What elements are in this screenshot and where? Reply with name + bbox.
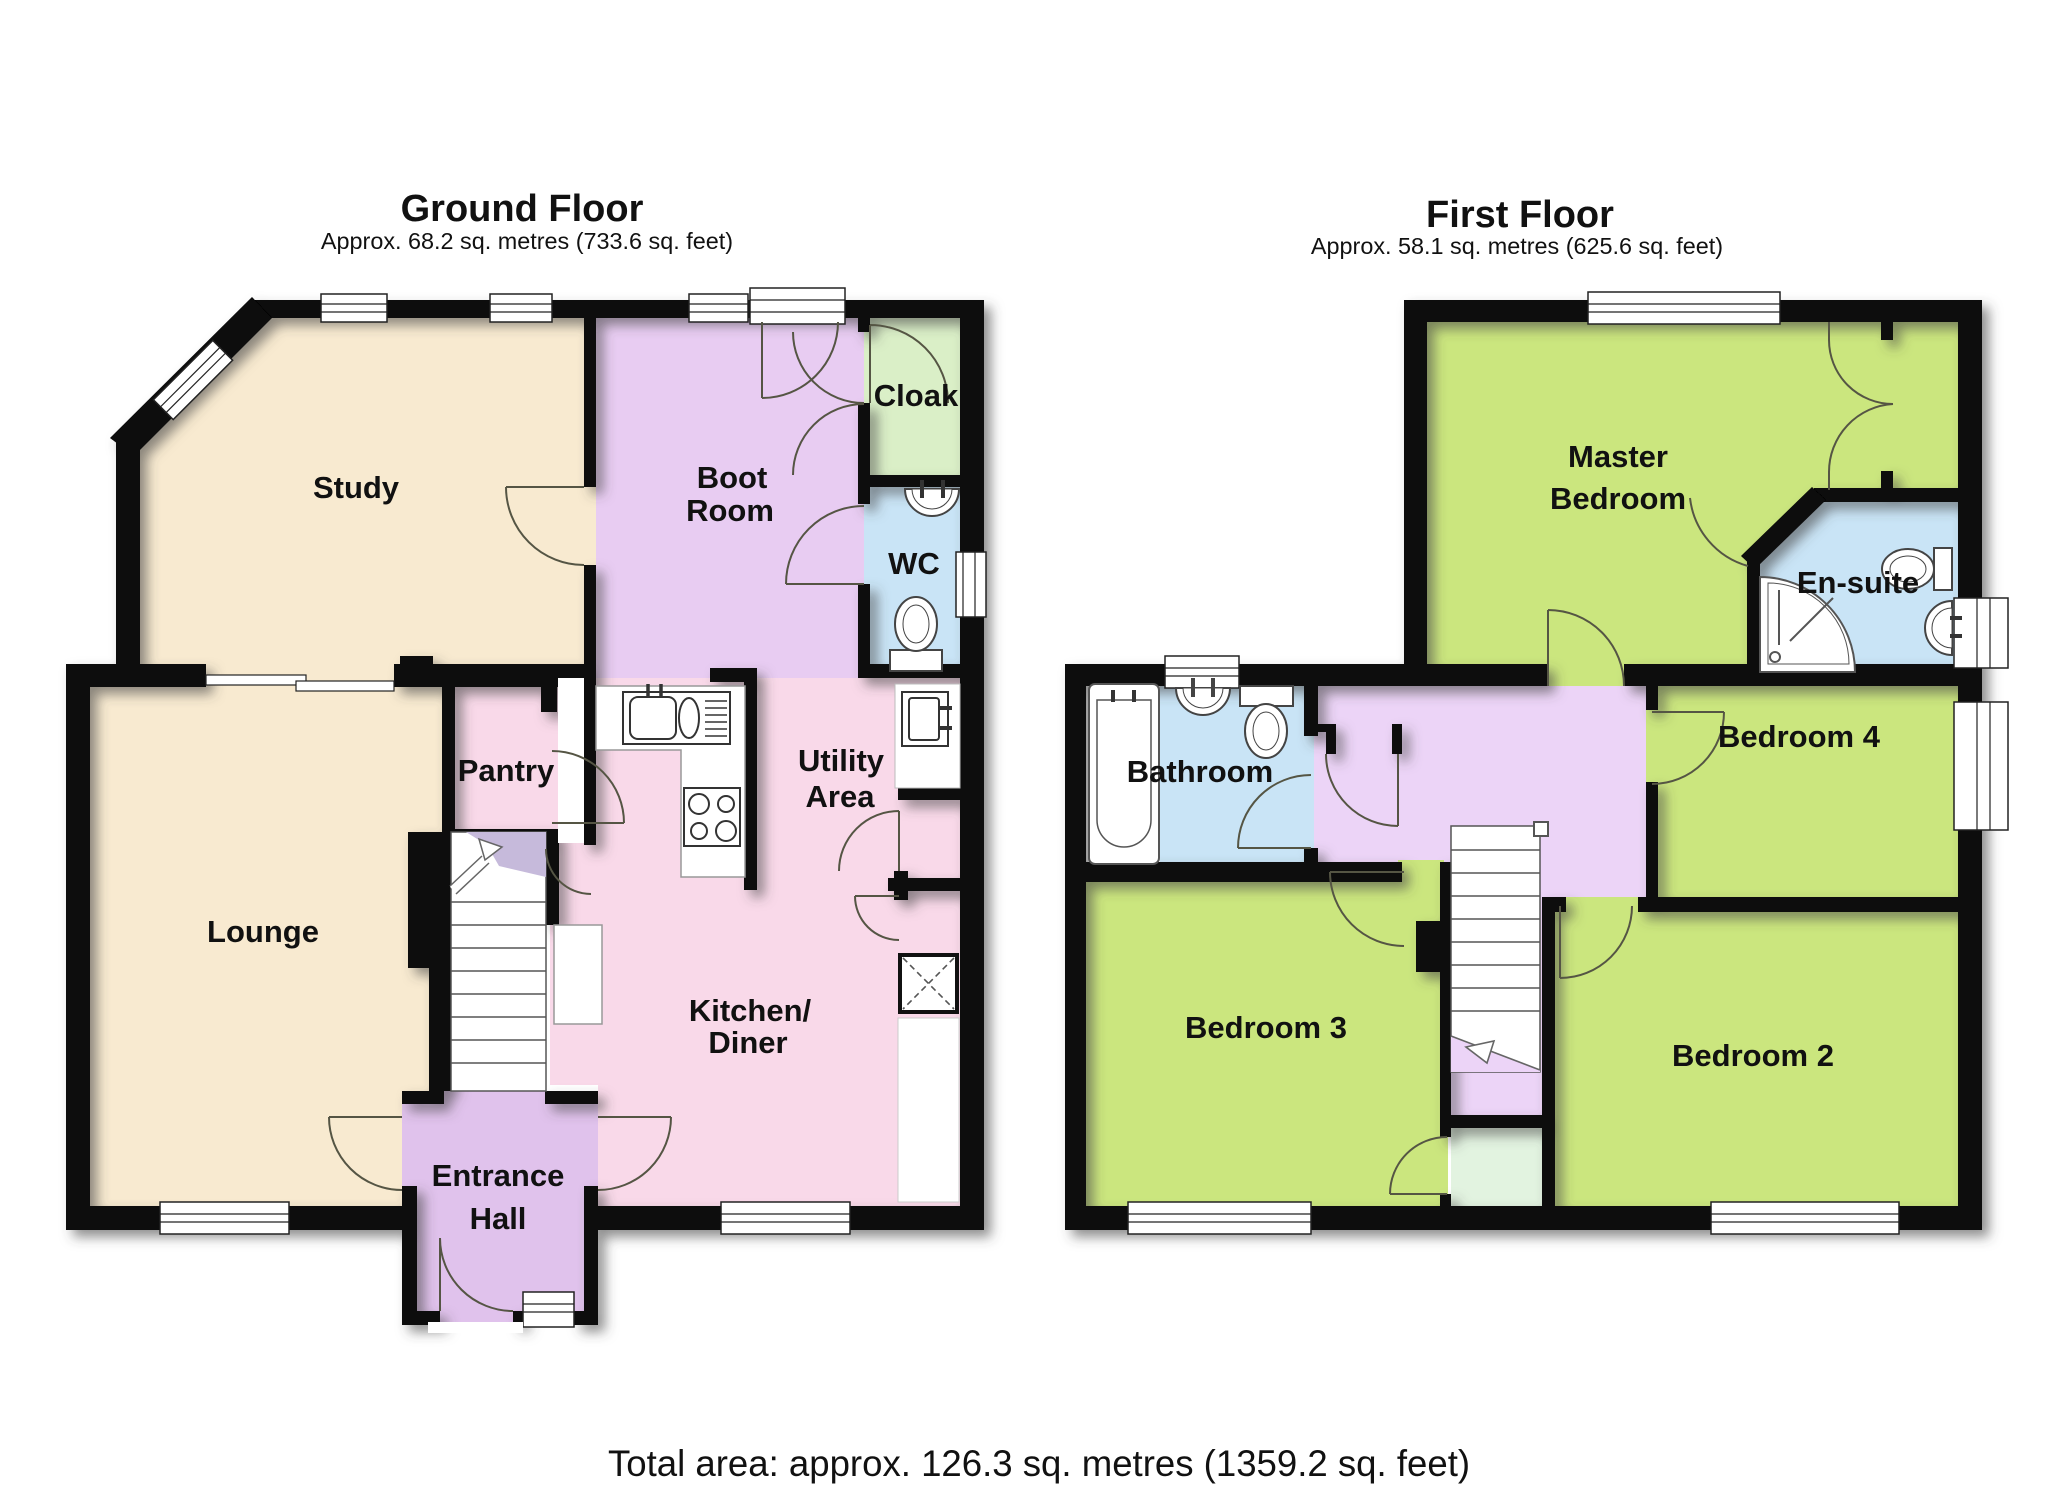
svg-text:Kitchen/: Kitchen/ xyxy=(689,993,812,1028)
svg-text:Cloak: Cloak xyxy=(874,378,959,413)
svg-text:Room: Room xyxy=(686,493,774,528)
svg-text:First Floor: First Floor xyxy=(1426,194,1614,236)
svg-text:Area: Area xyxy=(806,779,876,814)
svg-text:Approx. 68.2 sq. metres (733.6: Approx. 68.2 sq. metres (733.6 sq. feet) xyxy=(321,228,733,254)
svg-text:Total area: approx. 126.3 sq.: Total area: approx. 126.3 sq. metres (13… xyxy=(608,1443,1470,1484)
svg-text:Study: Study xyxy=(313,470,400,505)
svg-text:Bedroom 3: Bedroom 3 xyxy=(1185,1010,1347,1045)
svg-text:Bedroom 4: Bedroom 4 xyxy=(1718,719,1881,754)
svg-text:Utility: Utility xyxy=(798,743,885,778)
svg-text:Boot: Boot xyxy=(697,460,768,495)
svg-text:Lounge: Lounge xyxy=(207,914,319,949)
svg-text:Bedroom: Bedroom xyxy=(1550,481,1686,516)
svg-text:Bathroom: Bathroom xyxy=(1127,754,1273,789)
svg-text:Master: Master xyxy=(1568,439,1668,474)
svg-text:Bedroom 2: Bedroom 2 xyxy=(1672,1038,1834,1073)
svg-text:En-suite: En-suite xyxy=(1797,565,1919,600)
svg-text:WC: WC xyxy=(888,546,940,581)
svg-text:Approx. 58.1 sq. metres (625.6: Approx. 58.1 sq. metres (625.6 sq. feet) xyxy=(1311,233,1723,259)
svg-text:Entrance: Entrance xyxy=(432,1158,565,1193)
svg-text:Hall: Hall xyxy=(470,1201,527,1236)
svg-text:Pantry: Pantry xyxy=(458,753,555,788)
svg-text:Ground Floor: Ground Floor xyxy=(401,188,644,230)
svg-text:Diner: Diner xyxy=(708,1025,787,1060)
